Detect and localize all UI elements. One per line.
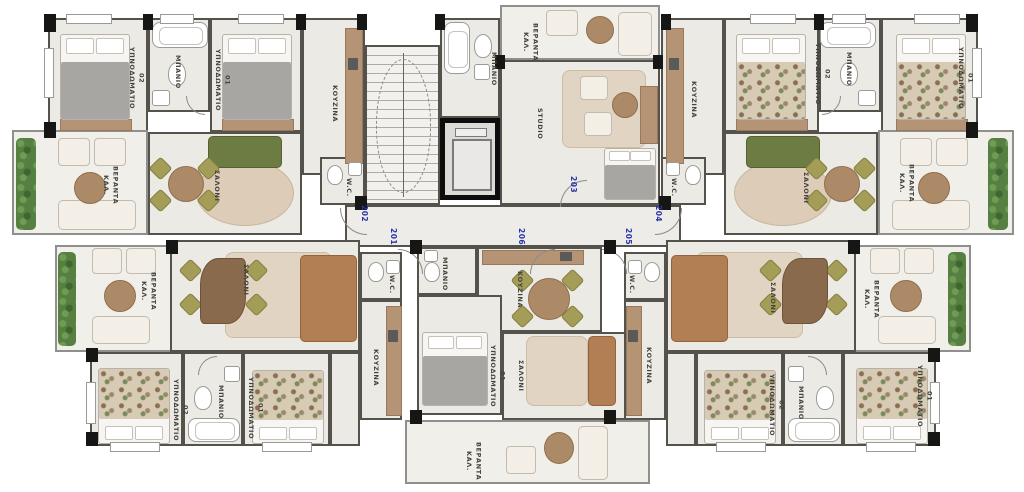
window — [832, 14, 866, 24]
label-bathroom-206: ΜΠΑΝΙΟ — [439, 257, 449, 291]
toilet — [327, 165, 343, 185]
armchair — [506, 446, 536, 474]
rug — [526, 336, 588, 406]
label-veranda-205: ΚΑΛ.ΒΕΡΑΝΤΑ — [861, 278, 881, 320]
label-bathroom-201: ΜΠΑΝΙΟ — [215, 385, 225, 417]
unit-number-204: 204 — [654, 205, 663, 233]
window — [66, 14, 112, 24]
wardrobe — [60, 119, 132, 131]
sofa — [878, 316, 936, 344]
armchair — [870, 248, 900, 274]
plant — [948, 252, 966, 346]
sofa — [208, 136, 282, 168]
plant — [988, 138, 1008, 230]
wardrobe — [222, 119, 294, 131]
coffee-table — [890, 280, 922, 312]
window — [866, 442, 916, 452]
washbasin — [424, 250, 438, 262]
bed — [98, 368, 170, 444]
bathtub — [152, 22, 208, 48]
armchair — [546, 10, 578, 36]
label-bedroom01-205: ΥΠΝΟΔΩΜΑΤΙΟ01 — [914, 362, 934, 430]
dining-table — [824, 166, 860, 202]
label-wc-202: W.C. — [343, 175, 353, 199]
label-veranda-204: ΚΑΛ.ΒΕΡΑΝΤΑ — [896, 162, 916, 204]
sofa — [618, 12, 652, 56]
elevator-cab — [452, 139, 492, 191]
label-bedroom01-201: ΥΠΝΟΔΩΜΑΤΙΟ01 — [245, 374, 265, 442]
label-bedroom01-204: ΥΠΝΟΔΩΜΑΤΙΟ01 — [955, 40, 975, 116]
column — [604, 240, 616, 254]
unit-number-202: 202 — [360, 205, 369, 233]
column — [966, 122, 978, 138]
coffee-table — [104, 280, 136, 312]
label-veranda-201: ΚΑΛ.ΒΕΡΑΝΤΑ — [138, 270, 158, 312]
label-living-205: ΣΑΛΟΝΙ — [767, 278, 777, 318]
pouf — [544, 432, 574, 464]
label-kitchen-205: ΚΟΥΖΙΝΑ — [643, 346, 653, 386]
column — [86, 348, 98, 362]
staircase — [365, 45, 440, 205]
label-studio-203: STUDIO — [534, 106, 544, 142]
bathtub — [444, 22, 470, 74]
dining-table — [782, 258, 828, 324]
label-wc-201: W.C. — [386, 272, 396, 296]
dining-table — [168, 166, 204, 202]
label-wc-205: W.C. — [626, 272, 636, 296]
bed — [422, 332, 488, 406]
washbasin — [858, 90, 876, 106]
label-bedroom02-205: ΥΠΝΟΔΩΜΑΤΙΟ02 — [766, 371, 786, 439]
column — [928, 432, 940, 446]
sofa — [58, 200, 136, 230]
washbasin — [788, 366, 804, 382]
wardrobe — [736, 119, 808, 131]
label-veranda-206: ΚΑΛ.ΒΕΡΑΝΤΑ — [463, 440, 483, 482]
toilet — [644, 262, 660, 282]
unit-number-201: 201 — [389, 228, 398, 252]
bed — [60, 34, 130, 120]
column — [410, 410, 422, 424]
kitchen-counter — [626, 306, 642, 416]
label-kitchen-206: ΚΟΥΖΙΝΑ — [514, 270, 524, 310]
toilet — [194, 386, 212, 410]
armchair — [92, 248, 122, 274]
label-wc-204: W.C. — [668, 175, 678, 199]
label-living-202: ΣΑΛΟΝΙ — [211, 166, 221, 206]
column — [814, 14, 824, 30]
label-bathroom-204: ΜΠΑΝΙΟ — [843, 52, 853, 86]
window — [914, 14, 960, 24]
plant — [16, 138, 36, 230]
armchair — [584, 112, 612, 136]
door-arc — [186, 96, 205, 115]
label-living-206: ΣΑΛΟΝΙ — [515, 356, 525, 396]
label-living-204: ΣΑΛΟΝΙ — [800, 168, 810, 208]
label-kitchen-202: ΚΟΥΖΙΝΑ — [329, 84, 339, 124]
kitchen-counter — [345, 28, 363, 164]
column — [410, 240, 422, 254]
wardrobe — [896, 119, 968, 131]
sofa — [588, 336, 616, 406]
kitchen-sink — [388, 330, 398, 342]
label-bedroom02-202: ΥΠΝΟΔΩΜΑΤΙΟ02 — [126, 40, 146, 116]
toilet — [685, 165, 701, 185]
kitchen-sink — [560, 252, 572, 261]
bed — [736, 34, 806, 120]
column — [435, 14, 445, 30]
window — [44, 48, 54, 98]
column — [357, 14, 367, 30]
coffee-table — [918, 172, 950, 204]
column — [44, 14, 56, 32]
label-kitchen-204: ΚΟΥΖΙΝΑ — [688, 80, 698, 120]
bed — [222, 34, 292, 120]
kitchen-sink — [348, 58, 358, 70]
elevator-door — [455, 128, 487, 137]
column — [604, 410, 616, 424]
window — [160, 14, 194, 24]
plant — [58, 252, 76, 346]
column — [848, 240, 860, 254]
column — [661, 14, 671, 30]
window — [238, 14, 284, 24]
column — [143, 14, 153, 30]
bed — [604, 148, 656, 200]
label-bathroom-203: ΜΠΑΝΙΟ — [488, 52, 498, 86]
column — [86, 432, 98, 446]
unit-number-205: 205 — [624, 228, 633, 252]
armchair — [58, 138, 90, 166]
unit-number-203: 203 — [569, 176, 578, 200]
column — [966, 14, 978, 32]
column — [166, 240, 178, 254]
hall-205 — [666, 352, 696, 446]
sofa — [671, 255, 728, 342]
unit-number-206: 206 — [517, 228, 526, 252]
washbasin — [152, 90, 170, 106]
kitchen-counter — [386, 306, 402, 416]
kitchenette — [640, 86, 658, 144]
label-bathroom-205: ΜΠΑΝΙΟ — [795, 386, 805, 418]
sofa — [300, 255, 357, 342]
column — [928, 348, 940, 362]
label-bedroom02-201: ΥΠΝΟΔΩΜΑΤΙΟ02 — [170, 376, 190, 444]
label-living-201: ΣΑΛΟΝΙ — [240, 260, 250, 300]
armchair — [94, 138, 126, 166]
column — [44, 122, 56, 138]
bathtub — [788, 418, 840, 442]
toilet — [816, 386, 834, 410]
sofa — [578, 426, 608, 480]
kitchen-sink — [628, 330, 638, 342]
label-bedroom01-206: ΥΠΝΟΔΩΜΑΤΙΟ01 — [487, 342, 507, 410]
window — [262, 442, 312, 452]
label-veranda-202: ΚΑΛ.ΒΕΡΑΝΤΑ — [100, 164, 120, 206]
washbasin — [666, 162, 680, 176]
toilet — [424, 262, 440, 282]
stair-path — [376, 59, 432, 192]
bathtub — [188, 418, 240, 442]
kitchen-sink — [669, 58, 679, 70]
window — [110, 442, 160, 452]
window — [750, 14, 796, 24]
armchair — [936, 138, 968, 166]
toilet — [368, 262, 384, 282]
floor-plan: ΥΠΝΟΔΩΜΑΤΙΟ02 ΜΠΑΝΙΟ ΥΠΝΟΔΩΜΑΤΙΟ01 ΚΟΥΖΙ… — [0, 0, 1024, 492]
window — [716, 442, 766, 452]
window — [86, 382, 96, 424]
washbasin — [348, 162, 362, 176]
label-bedroom01-202: ΥΠΝΟΔΩΜΑΤΙΟ01 — [212, 42, 232, 118]
label-veranda-203: ΚΑΛ.ΒΕΡΑΝΤΑ — [520, 22, 540, 62]
elevator — [440, 118, 500, 200]
table — [612, 92, 638, 118]
column — [296, 14, 306, 30]
pouf — [586, 16, 614, 44]
armchair — [904, 248, 934, 274]
column — [653, 55, 663, 69]
sofa — [892, 200, 970, 230]
kitchen-counter — [666, 28, 684, 164]
armchair — [580, 76, 608, 100]
label-bathroom-202: ΜΠΑΝΙΟ — [172, 52, 182, 92]
washbasin — [224, 366, 240, 382]
dining-table — [528, 278, 570, 320]
label-bedroom02-204: ΥΠΝΟΔΩΜΑΤΙΟ02 — [812, 36, 832, 112]
label-kitchen-201: ΚΟΥΖΙΝΑ — [370, 348, 380, 388]
hall-201 — [330, 352, 360, 446]
sofa — [92, 316, 150, 344]
